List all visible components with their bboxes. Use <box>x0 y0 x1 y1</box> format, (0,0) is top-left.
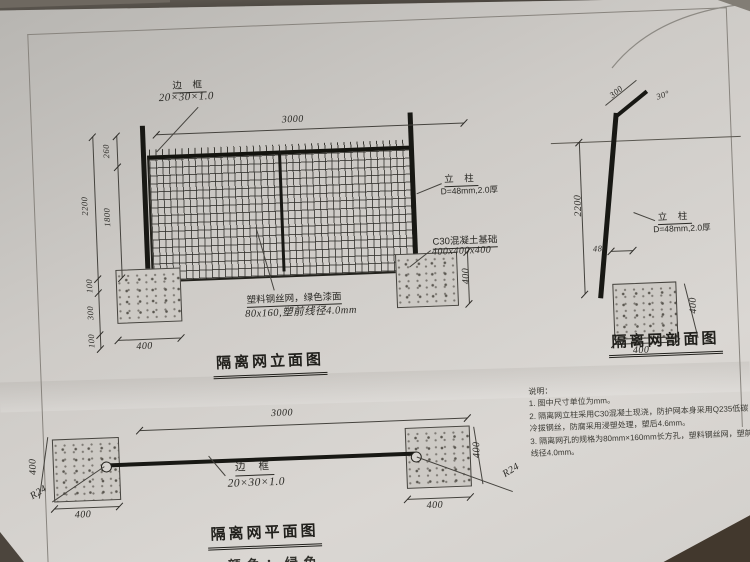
leader-line <box>633 212 655 221</box>
section-dim-300: 300 <box>607 83 624 100</box>
elevation-dim-3000: 3000 <box>282 114 304 126</box>
sheet-border-left <box>27 34 49 562</box>
elevation-post-spec: D=48mm,2.0厚 <box>440 183 498 197</box>
elevation-dim-300: 300 <box>85 306 96 321</box>
sheet-border-right <box>726 7 743 427</box>
plan-dim-400-right-side: 400 <box>471 441 483 458</box>
elevation-dim-100b: 100 <box>86 334 97 349</box>
plan-frame-spec: 20×30×1.0 <box>227 476 285 490</box>
elevation-foundation-spec: 400x400x400 <box>432 245 492 258</box>
elevation-dim-400w: 400 <box>136 341 153 353</box>
plan-dim-400-left: 400 <box>75 509 92 521</box>
dimension-line <box>579 142 586 294</box>
paper-fold-crease <box>600 0 750 70</box>
elevation-mesh-spec: 80x160,塑前线径4.0mm <box>245 302 357 321</box>
elevation-foundation-left <box>115 267 182 323</box>
plan-title: 隔离网平面图 <box>207 519 322 550</box>
section-title: 隔离网剖面图 <box>608 327 723 358</box>
notes-block: 说明： 1. 图中尺寸单位为mm。 2. 隔离网立柱采用C30混凝土现浇，防护网… <box>528 378 750 461</box>
plan-dim-400-right: 400 <box>426 500 443 512</box>
leader-line <box>156 107 198 152</box>
elevation-dim-100a: 100 <box>84 279 95 294</box>
dim-tick <box>97 345 105 353</box>
plan-frame-label: 边 框 <box>235 458 275 476</box>
elevation-dim-400h: 400 <box>460 268 472 285</box>
elevation-frame-spec: 20×30×1.0 <box>159 90 215 104</box>
section-angle-30: 30° <box>655 88 671 102</box>
section-dim-48: 48 <box>593 243 603 253</box>
elevation-dim-1800: 1800 <box>101 208 112 227</box>
elevation-foundation-right <box>395 252 459 308</box>
section-post-spec: D=48mm,2.0厚 <box>653 221 711 235</box>
plan-dim-400-left-side: 400 <box>27 458 39 475</box>
section-dim-2200: 2200 <box>572 194 584 216</box>
elevation-dim-2200: 2200 <box>79 196 90 215</box>
partial-bottom-text: 颜色：绿色 <box>227 551 323 562</box>
drawing-sheet: 3000 边 框 20×30×1.0 260 1800 2200 100 300… <box>0 0 750 562</box>
photo-of-drawing: 3000 边 框 20×30×1.0 260 1800 2200 100 300… <box>0 0 750 562</box>
photo-edge-top-left <box>0 0 170 8</box>
plan-r24-right: R24 <box>501 461 522 480</box>
leader-line <box>416 183 441 194</box>
dimension-line <box>156 122 464 135</box>
section-dim-400h: 400 <box>688 297 700 314</box>
dimension-line <box>116 136 122 278</box>
plan-dim-3000: 3000 <box>271 407 293 419</box>
elevation-dim-260: 260 <box>101 144 112 159</box>
elevation-title: 隔离网立面图 <box>213 348 328 379</box>
